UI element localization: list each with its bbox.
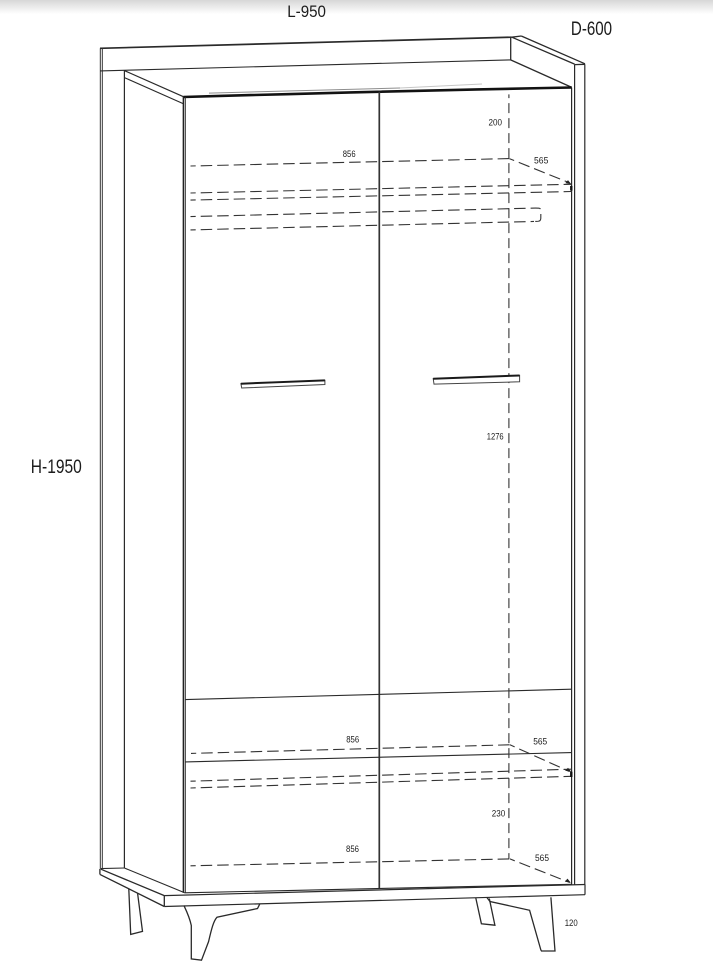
svg-text:565: 565 — [534, 156, 548, 167]
svg-text:856: 856 — [346, 844, 359, 855]
svg-text:856: 856 — [346, 735, 359, 746]
svg-text:565: 565 — [535, 853, 549, 864]
svg-text:H-1950: H-1950 — [31, 457, 82, 478]
svg-text:565: 565 — [533, 737, 547, 748]
svg-text:1276: 1276 — [487, 432, 504, 443]
svg-text:120: 120 — [565, 918, 578, 929]
svg-text:L-950: L-950 — [287, 2, 326, 21]
svg-text:230: 230 — [492, 809, 506, 820]
svg-text:D-600: D-600 — [571, 18, 612, 40]
svg-text:856: 856 — [343, 149, 356, 160]
svg-text:200: 200 — [489, 117, 503, 128]
